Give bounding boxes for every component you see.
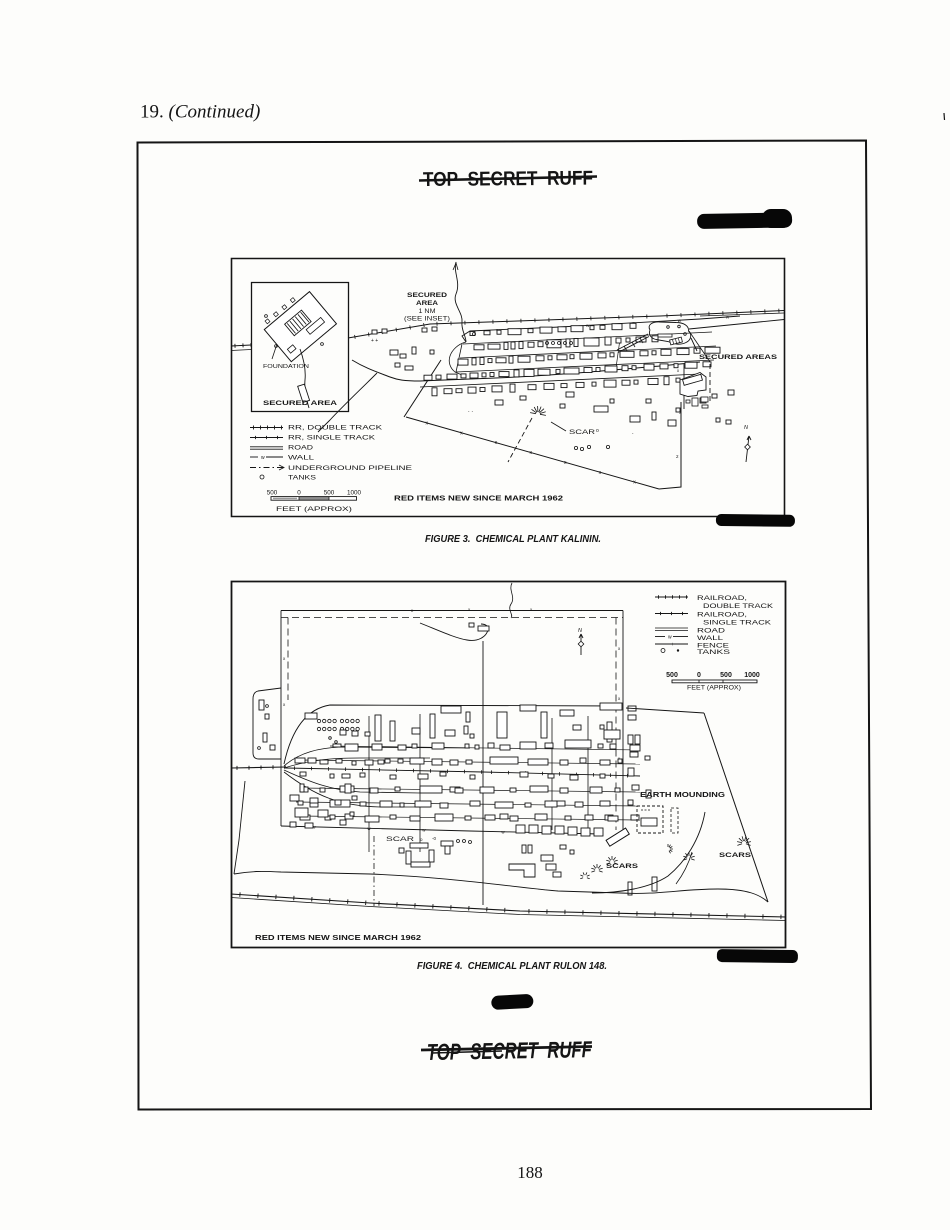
svg-text:EARTH MOUNDING: EARTH MOUNDING xyxy=(640,792,726,799)
svg-text:500: 500 xyxy=(267,490,278,497)
svg-text:. .: . . xyxy=(468,408,473,414)
svg-text:x: x xyxy=(283,702,286,707)
svg-text:SCAR: SCAR xyxy=(386,836,415,843)
svg-text:x: x xyxy=(618,696,621,701)
svg-text:RR, DOUBLE TRACK: RR, DOUBLE TRACK xyxy=(288,425,383,432)
svg-text:500: 500 xyxy=(324,490,335,497)
svg-text:+: + xyxy=(671,642,674,648)
svg-text:ROAD: ROAD xyxy=(288,445,314,452)
svg-text:SECURED AREA: SECURED AREA xyxy=(263,400,337,407)
svg-text:1000: 1000 xyxy=(744,672,760,679)
svg-text:x: x xyxy=(530,607,533,612)
svg-text:TANKS: TANKS xyxy=(697,649,730,656)
svg-text:1000: 1000 xyxy=(347,490,362,497)
svg-text:RR, SINGLE TRACK: RR, SINGLE TRACK xyxy=(288,435,376,442)
svg-text:N: N xyxy=(744,425,748,431)
svg-text:SCARS: SCARS xyxy=(719,852,752,859)
svg-text:RED ITEMS NEW SINCE MARCH 1962: RED ITEMS NEW SINCE MARCH 1962 xyxy=(394,494,563,503)
svg-text:SCARS: SCARS xyxy=(606,863,639,870)
svg-text:0: 0 xyxy=(697,672,701,679)
svg-text:x: x xyxy=(618,646,621,651)
svg-text:o: o xyxy=(596,428,599,434)
svg-text:+ +: + + xyxy=(371,338,378,344)
svg-text:188: 188 xyxy=(517,1163,543,1182)
svg-text:WALL: WALL xyxy=(288,455,315,462)
svg-text:-0: -0 xyxy=(432,836,436,841)
svg-text:x: x xyxy=(679,410,682,415)
svg-text:RED ITEMS NEW SINCE MARCH 1962: RED ITEMS NEW SINCE MARCH 1962 xyxy=(255,933,421,942)
svg-text:.: . xyxy=(632,430,634,436)
svg-text:FIGURE 3. CHEMICAL PLANT KALI: FIGURE 3. CHEMICAL PLANT KALININ. xyxy=(425,533,601,545)
svg-text:0: 0 xyxy=(297,490,301,497)
svg-text:500: 500 xyxy=(666,672,678,679)
svg-text:FEET (APPROX): FEET (APPROX) xyxy=(276,506,352,513)
svg-text:FEET (APPROX): FEET (APPROX) xyxy=(687,685,741,692)
svg-text:2: 2 xyxy=(676,454,679,459)
svg-text:w: w xyxy=(261,455,265,461)
svg-text:DOUBLE TRACK: DOUBLE TRACK xyxy=(703,603,774,610)
svg-text:19. (Continued): 19. (Continued) xyxy=(140,102,260,123)
svg-text:AREA: AREA xyxy=(416,300,439,307)
svg-text:RAILROAD,: RAILROAD, xyxy=(697,595,747,602)
svg-text:TANKS: TANKS xyxy=(288,475,316,482)
svg-text:ROAD: ROAD xyxy=(697,628,726,635)
svg-text:SECURED AREAS: SECURED AREAS xyxy=(699,354,778,361)
svg-text:x: x xyxy=(677,368,680,373)
svg-text:UNDERGROUND PIPELINE: UNDERGROUND PIPELINE xyxy=(288,465,412,472)
svg-text:WALL: WALL xyxy=(697,635,724,642)
svg-text:FIGURE 4. CHEMICAL PLANT RULO: FIGURE 4. CHEMICAL PLANT RULON 148. xyxy=(417,960,607,972)
svg-text:w: w xyxy=(668,635,672,641)
svg-text:500: 500 xyxy=(720,672,732,679)
svg-text:SECURED: SECURED xyxy=(407,292,448,299)
svg-text:x: x xyxy=(283,656,286,661)
svg-text:1 NM: 1 NM xyxy=(419,309,436,315)
svg-text:(SEE INSET): (SEE INSET) xyxy=(404,317,450,323)
svg-text:N: N xyxy=(578,628,582,634)
svg-text:x: x xyxy=(468,607,471,612)
svg-text:SCAR: SCAR xyxy=(569,429,596,436)
svg-text:SINGLE TRACK: SINGLE TRACK xyxy=(703,620,772,627)
svg-text:o: o xyxy=(420,837,423,842)
svg-text:RAILROAD,: RAILROAD, xyxy=(697,612,747,619)
svg-text:FOUNDATION: FOUNDATION xyxy=(263,364,309,370)
